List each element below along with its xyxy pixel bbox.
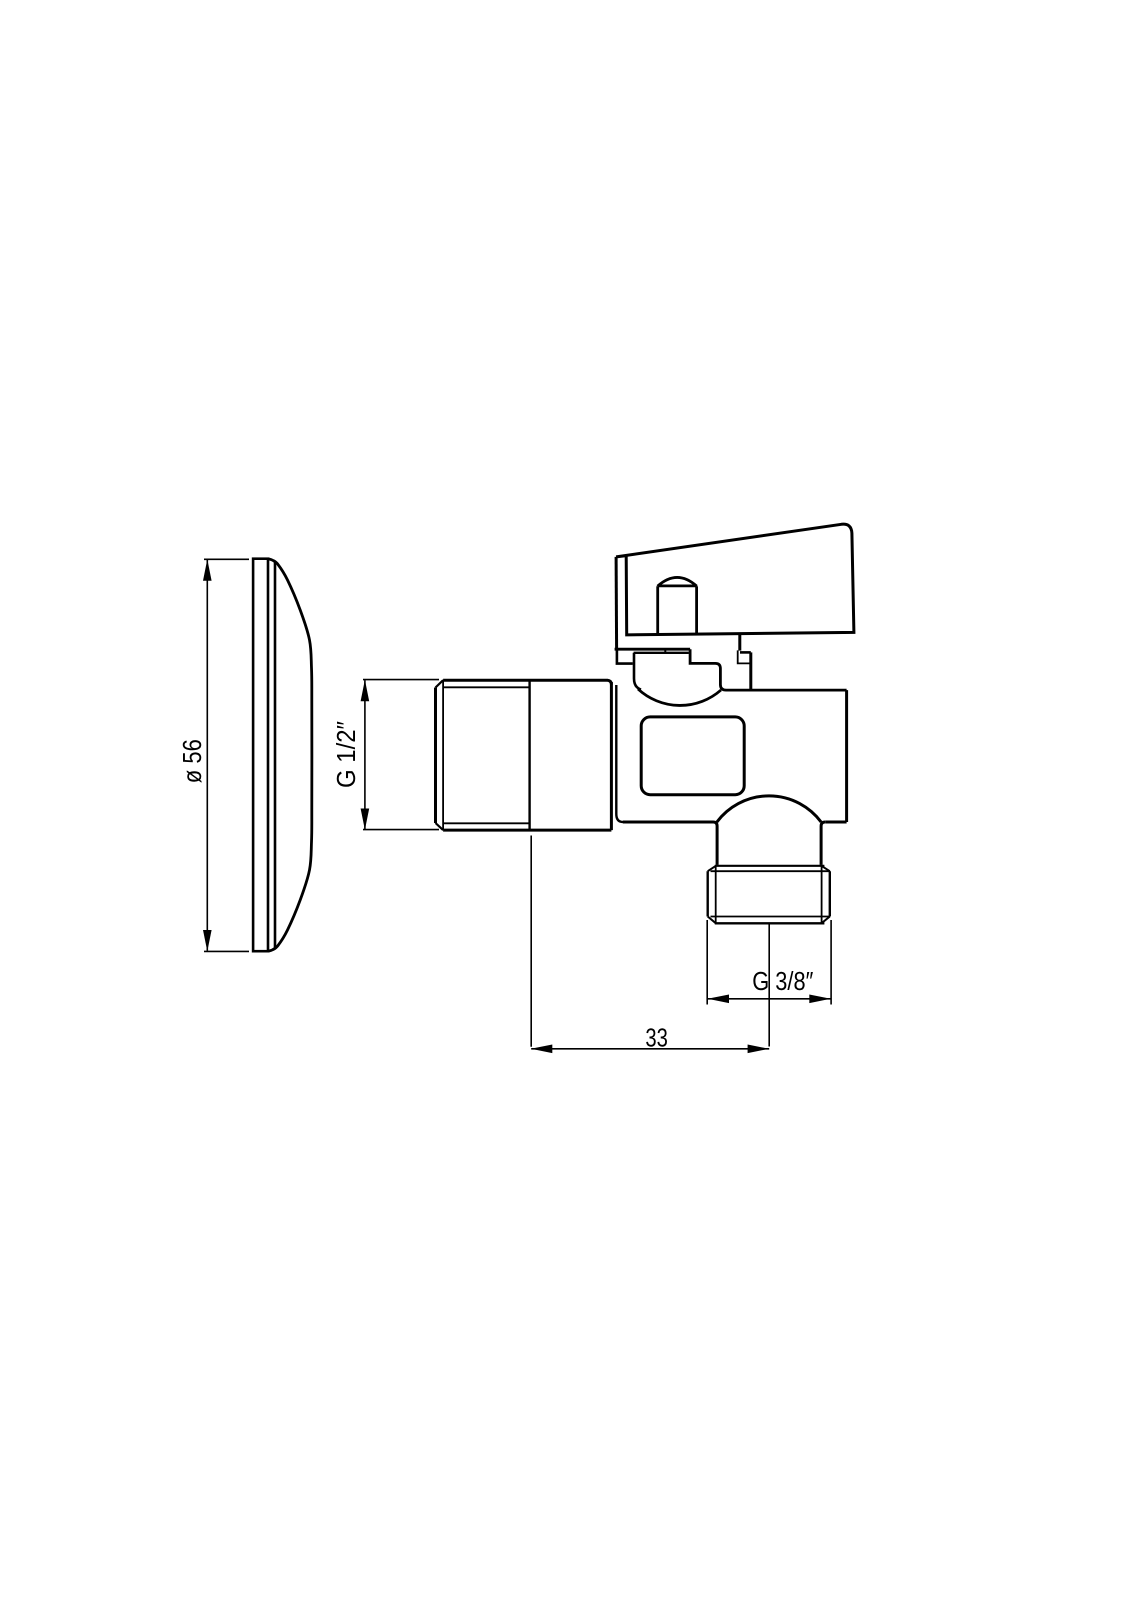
svg-text:G 1/2″: G 1/2″	[331, 721, 361, 788]
svg-text:G 3/8″: G 3/8″	[752, 966, 813, 996]
svg-text:ø 56: ø 56	[177, 739, 207, 783]
svg-text:33: 33	[645, 1022, 668, 1052]
